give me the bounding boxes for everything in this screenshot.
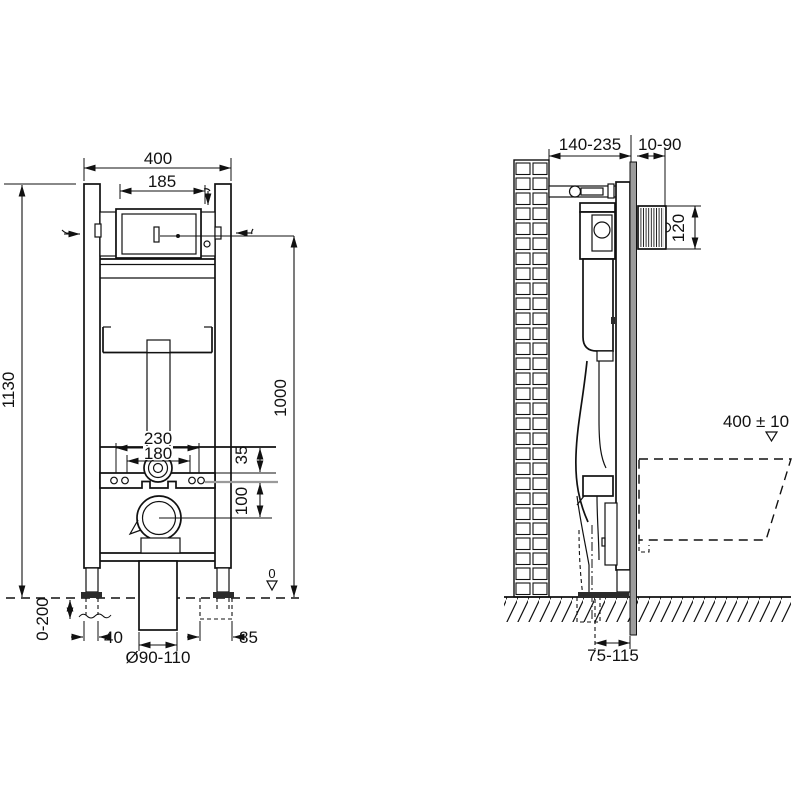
dim-cistern-width: 185 xyxy=(120,172,205,204)
frame-post-left xyxy=(84,184,100,568)
svg-text:400: 400 xyxy=(144,149,172,168)
dim-outlet-diameter: Ø90-110 xyxy=(126,632,191,667)
fixing-screw xyxy=(570,186,581,197)
svg-text:185: 185 xyxy=(148,172,176,191)
svg-text:75-115: 75-115 xyxy=(587,646,639,665)
svg-text:120: 120 xyxy=(669,214,688,242)
svg-text:40: 40 xyxy=(104,628,123,647)
actuator-opening-box xyxy=(638,206,671,249)
flush-bend-side xyxy=(576,361,617,622)
dim-bowl-top-height: 400 ± 10 xyxy=(723,412,789,441)
wall-section xyxy=(514,160,549,597)
svg-text:180: 180 xyxy=(144,444,172,463)
svg-text:0-200: 0-200 xyxy=(33,597,52,640)
dim-outlet-offset: 100 xyxy=(232,483,260,517)
side-view: 140-235 10-90 120 400 ± 10 75-115 xyxy=(504,135,791,665)
svg-text:Ø90-110: Ø90-110 xyxy=(126,648,191,667)
dim-wall-finish-depth: 10-90 xyxy=(637,135,681,207)
svg-text:100: 100 xyxy=(232,487,251,515)
cistern-side xyxy=(580,203,615,361)
front-view: 400 185 1130 1000 230 xyxy=(0,149,299,667)
foot-pad-hidden xyxy=(200,598,232,619)
svg-text:1130: 1130 xyxy=(0,372,18,409)
wall-fixing-rail xyxy=(549,184,617,198)
svg-text:0: 0 xyxy=(268,566,275,581)
base-plate xyxy=(578,592,629,598)
svg-text:400 ± 10: 400 ± 10 xyxy=(723,412,789,431)
cistern-side-bracket-left xyxy=(100,212,116,256)
frame-post-right xyxy=(215,184,231,568)
datum-triangle-icon xyxy=(267,581,277,590)
toilet-bowl-outline xyxy=(639,459,791,552)
frame-profile-side xyxy=(616,182,630,570)
floor-section xyxy=(504,597,791,622)
installation-frame-drawing: 400 185 1130 1000 230 xyxy=(0,0,800,800)
dim-foot-right: 85 xyxy=(187,621,258,647)
dim-frame-height: 1130 xyxy=(0,184,76,597)
svg-text:35: 35 xyxy=(232,446,251,465)
technical-drawing-page: 400 185 1130 1000 230 xyxy=(0,0,800,800)
datum-triangle-icon xyxy=(766,432,777,441)
frame-foot-side xyxy=(617,570,630,592)
svg-text:85: 85 xyxy=(239,628,258,647)
svg-text:1000: 1000 xyxy=(271,379,290,417)
dim-supply-offset: 35 xyxy=(232,446,260,472)
outlet-bracket xyxy=(583,476,613,496)
svg-text:10-90: 10-90 xyxy=(638,135,681,154)
break-line xyxy=(79,614,111,618)
cistern-side-bracket-right xyxy=(201,212,215,256)
outlet-connector xyxy=(605,503,617,565)
floor-datum: 0 xyxy=(267,566,277,590)
dim-frame-depth: 140-235 xyxy=(549,135,631,162)
dim-actuator-opening-height: 120 xyxy=(667,206,701,249)
drain-pipe xyxy=(139,561,177,630)
svg-text:140-235: 140-235 xyxy=(559,135,621,154)
dim-foot-left: 40 xyxy=(71,621,123,647)
actuation-arrow-icon xyxy=(62,230,69,233)
outlet-flange xyxy=(141,538,180,553)
cistern-front xyxy=(95,209,221,258)
dim-leg-adjustment: 0-200 xyxy=(33,597,70,640)
finished-wall-panel xyxy=(630,162,637,635)
